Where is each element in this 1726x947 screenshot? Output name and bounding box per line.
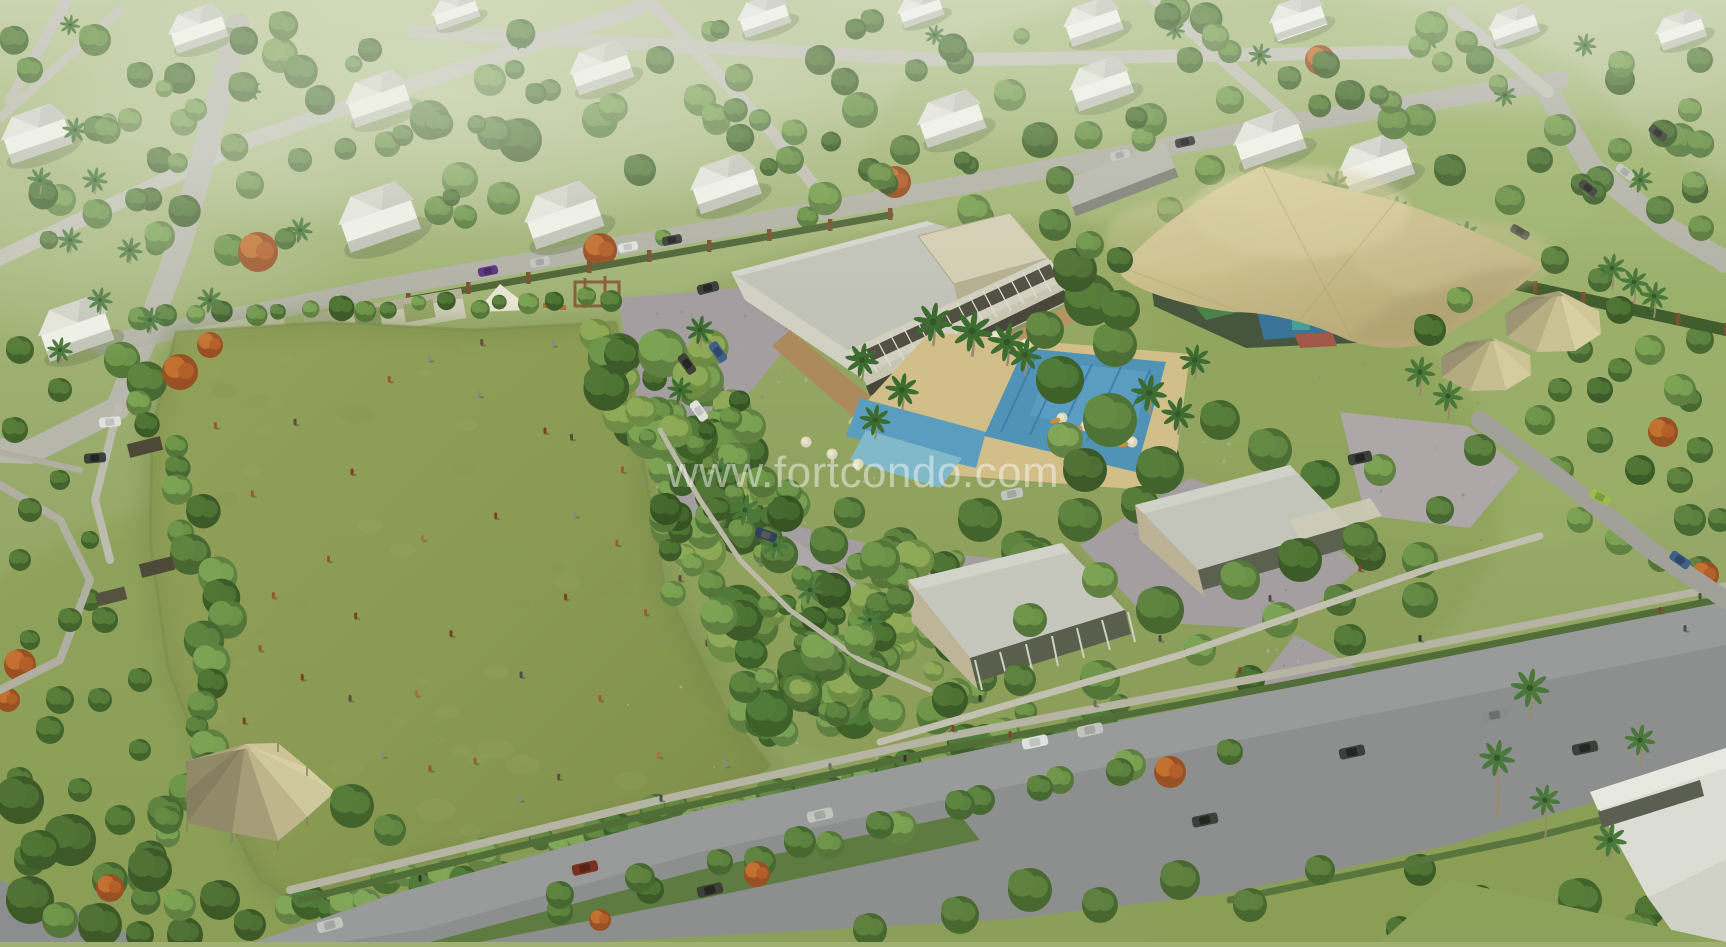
svg-text:www.fortcondo.com: www.fortcondo.com (666, 448, 1059, 497)
